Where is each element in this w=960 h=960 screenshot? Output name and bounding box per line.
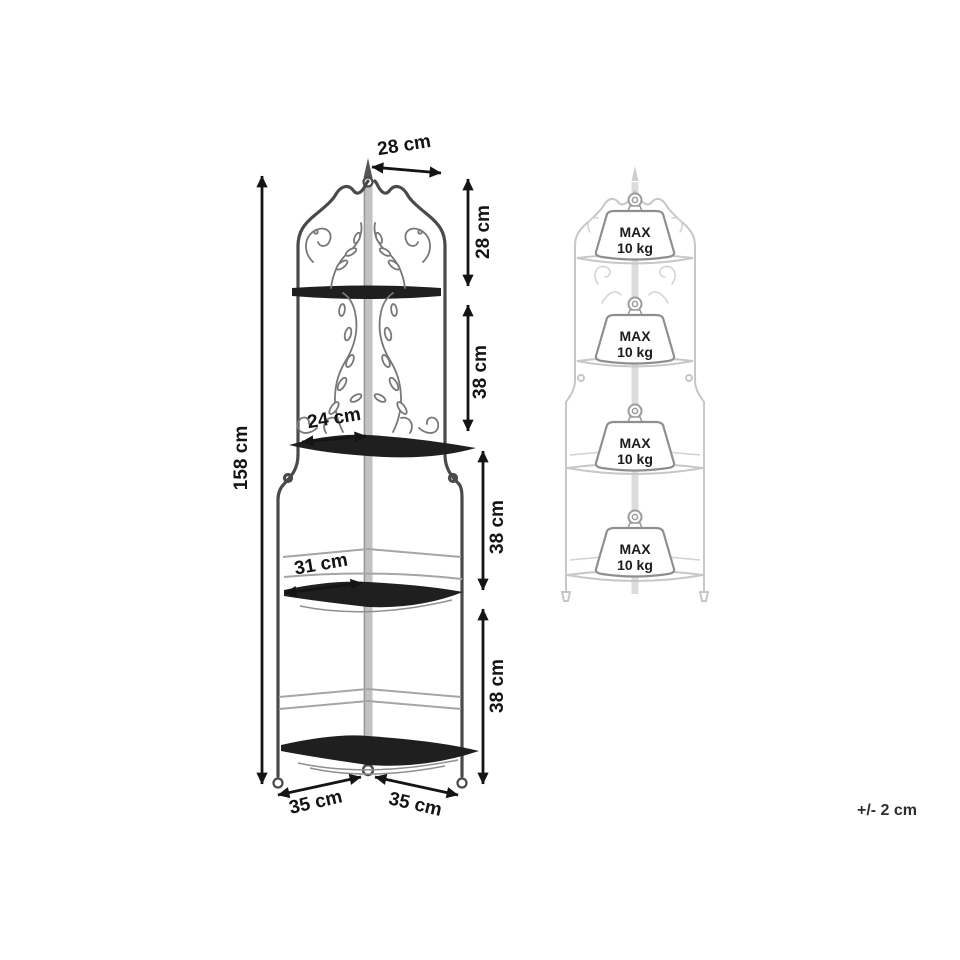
dim-label-shelf3-depth: 31 cm xyxy=(293,550,350,580)
ghost-curl-left xyxy=(578,375,584,381)
max-load-label-2-line1: MAX xyxy=(619,328,651,344)
scrollwork-panel-right xyxy=(373,293,438,433)
max-load-weight-1: MAX 10 kg xyxy=(596,194,674,260)
corner-shelf-technical-drawing: 158 cm 28 cm 28 cm 38 cm 38 cm 38 cm 24 … xyxy=(231,131,508,821)
max-load-label-4-line1: MAX xyxy=(619,541,651,557)
foot-right xyxy=(458,779,467,788)
scrollwork-top-right xyxy=(374,223,430,288)
shelf-1 xyxy=(292,286,441,300)
dim-label-bottom-section: 38 cm xyxy=(487,659,508,713)
max-load-weight-2: MAX 10 kg xyxy=(596,298,674,364)
dim-label-top-width: 28 cm xyxy=(376,131,432,160)
dim-label-top-section: 28 cm xyxy=(473,205,494,259)
diagram-svg: 158 cm 28 cm 28 cm 38 cm 38 cm 38 cm 24 … xyxy=(0,0,960,960)
ghost-foot-right xyxy=(700,592,708,601)
finial-spike xyxy=(364,158,373,178)
flare-right xyxy=(445,455,462,500)
ghost-finial xyxy=(632,166,639,181)
max-load-label-1-line2: 10 kg xyxy=(617,240,653,256)
max-load-weight-3: MAX 10 kg xyxy=(596,405,674,471)
dim-label-middle-section: 38 cm xyxy=(487,500,508,554)
scrollwork-top-left xyxy=(306,223,362,288)
ghost-foot-left xyxy=(562,592,570,601)
max-load-label-1-line1: MAX xyxy=(619,224,651,240)
arch-right xyxy=(375,181,445,455)
max-load-label-3-line1: MAX xyxy=(619,435,651,451)
max-load-diagram: MAX 10 kg MAX 10 kg MAX 10 kg MAX 10 kg xyxy=(562,166,708,601)
max-load-weight-4: MAX 10 kg xyxy=(596,511,674,577)
max-load-label-4-line2: 10 kg xyxy=(617,557,653,573)
dim-arrow-top-width xyxy=(372,167,441,173)
max-load-label-3-line2: 10 kg xyxy=(617,451,653,467)
shelf-2 xyxy=(289,435,476,458)
dim-arrow-base-right xyxy=(375,777,458,795)
dim-label-base-right: 35 cm xyxy=(387,788,444,821)
tolerance-note: +/- 2 cm xyxy=(857,802,917,819)
shelves xyxy=(281,286,479,775)
max-load-label-2-line2: 10 kg xyxy=(617,344,653,360)
dim-label-total-height: 158 cm xyxy=(231,426,252,490)
center-pole xyxy=(363,158,373,775)
product-dimension-sheet: 158 cm 28 cm 28 cm 38 cm 38 cm 38 cm 24 … xyxy=(0,0,960,960)
dim-label-shelf2-depth: 24 cm xyxy=(306,404,362,433)
ghost-curl-right xyxy=(686,375,692,381)
flare-left xyxy=(278,455,298,500)
dim-label-upper-section: 38 cm xyxy=(470,345,491,399)
foot-left xyxy=(274,779,283,788)
